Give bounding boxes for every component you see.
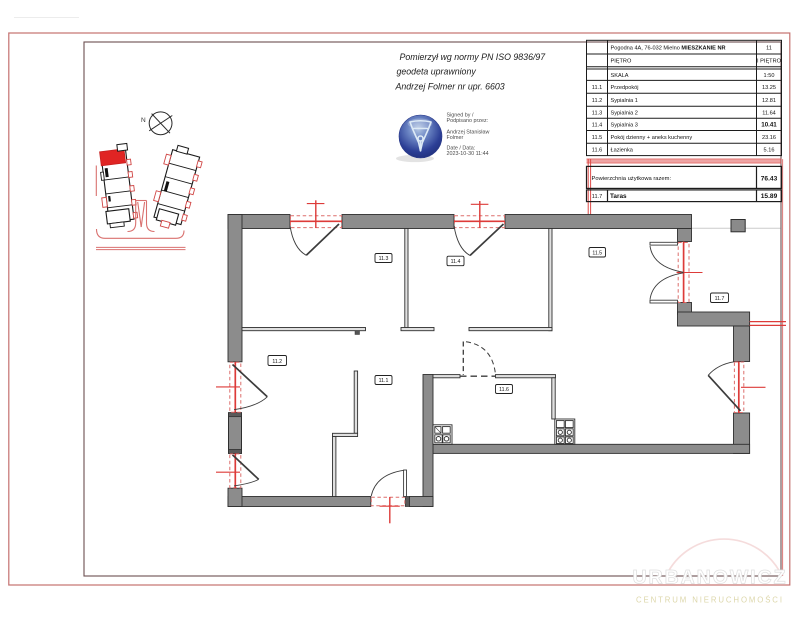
svg-text:11.5: 11.5 bbox=[592, 135, 602, 141]
svg-text:Podpisano przez:: Podpisano przez: bbox=[447, 118, 489, 124]
svg-text:Sypialnia 3: Sypialnia 3 bbox=[611, 123, 638, 129]
svg-text:5.16: 5.16 bbox=[764, 148, 775, 154]
svg-text:Powierzchnia użytkowa razem:: Powierzchnia użytkowa razem: bbox=[592, 176, 672, 182]
svg-text:Sypialnia 2: Sypialnia 2 bbox=[611, 110, 638, 116]
svg-text:11.2: 11.2 bbox=[272, 359, 282, 365]
svg-text:Przedpokój: Przedpokój bbox=[611, 85, 639, 91]
svg-text:13.25: 13.25 bbox=[762, 85, 776, 91]
svg-text:15.89: 15.89 bbox=[761, 193, 778, 200]
svg-text:76.43: 76.43 bbox=[761, 176, 778, 183]
svg-text:Folmer: Folmer bbox=[447, 135, 464, 141]
svg-text:11.64: 11.64 bbox=[762, 110, 776, 116]
svg-text:II PIĘTRO: II PIĘTRO bbox=[756, 59, 782, 65]
svg-text:Pokój dzienny + aneks kuchenny: Pokój dzienny + aneks kuchenny bbox=[611, 135, 693, 141]
svg-text:11.1: 11.1 bbox=[379, 378, 389, 384]
svg-text:1:50: 1:50 bbox=[764, 73, 775, 79]
svg-text:PIĘTRO: PIĘTRO bbox=[611, 59, 632, 65]
svg-text:11.5: 11.5 bbox=[592, 250, 602, 256]
svg-text:12.81: 12.81 bbox=[762, 98, 776, 104]
svg-text:11.4: 11.4 bbox=[451, 259, 461, 265]
svg-text:11.3: 11.3 bbox=[592, 110, 602, 116]
svg-text:Taras: Taras bbox=[610, 193, 627, 200]
svg-text:11.3: 11.3 bbox=[379, 256, 389, 262]
svg-text:Łazienka: Łazienka bbox=[611, 148, 634, 154]
svg-text:11.4: 11.4 bbox=[592, 123, 602, 129]
svg-text:23.16: 23.16 bbox=[762, 135, 776, 141]
svg-text:11.7: 11.7 bbox=[592, 194, 602, 200]
svg-text:11.1: 11.1 bbox=[592, 85, 602, 91]
svg-text:Sypialnia 1: Sypialnia 1 bbox=[611, 98, 638, 104]
svg-text:Andrzej Folmer nr upr. 6603: Andrzej Folmer nr upr. 6603 bbox=[395, 82, 505, 92]
svg-text:SKALA: SKALA bbox=[611, 73, 629, 79]
svg-text:11.6: 11.6 bbox=[592, 148, 602, 154]
svg-text:N: N bbox=[141, 117, 146, 124]
svg-text:2023-10-30 11:44: 2023-10-30 11:44 bbox=[447, 151, 489, 157]
svg-text:Pomierzył wg normy PN ISO 983: Pomierzył wg normy PN ISO 9836/97 bbox=[400, 52, 547, 62]
svg-text:10.41: 10.41 bbox=[761, 122, 777, 129]
svg-text:Pogodna 4A, 76-032 Mielno MIE: Pogodna 4A, 76-032 Mielno MIESZKANIE NR bbox=[611, 45, 726, 51]
svg-text:11.7: 11.7 bbox=[715, 296, 725, 302]
svg-text:11.6: 11.6 bbox=[499, 387, 509, 393]
svg-text:11: 11 bbox=[766, 45, 772, 51]
svg-text:11.2: 11.2 bbox=[592, 98, 602, 104]
svg-text:URBANOWICZ: URBANOWICZ bbox=[633, 567, 786, 589]
svg-text:geodeta uprawniony: geodeta uprawniony bbox=[397, 67, 477, 77]
